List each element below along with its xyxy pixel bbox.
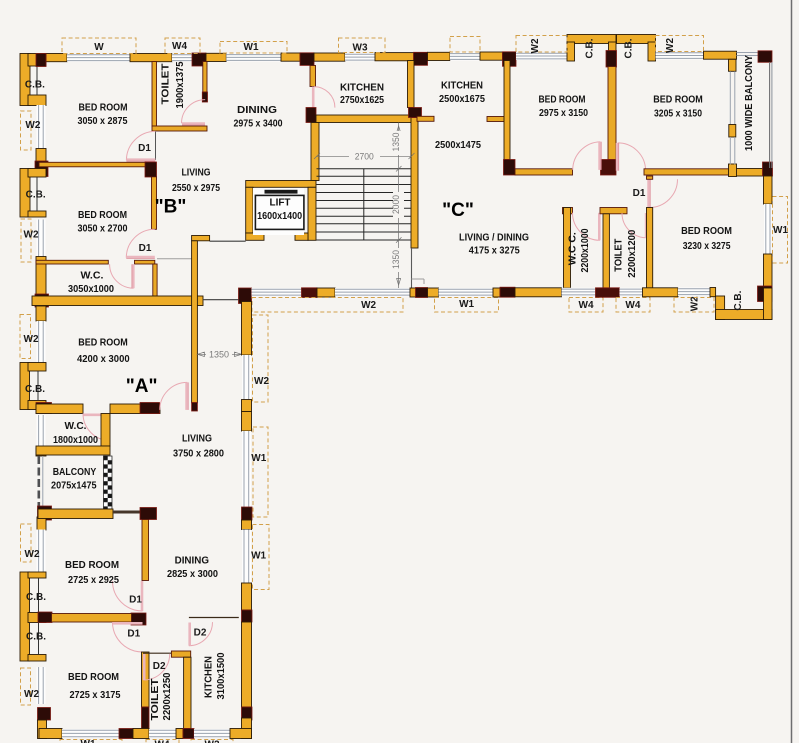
svg-text:2200x1200: 2200x1200 [626, 230, 638, 278]
svg-text:LIVING / DINING: LIVING / DINING [459, 232, 529, 244]
svg-text:LIVING: LIVING [182, 433, 212, 445]
svg-text:D1: D1 [138, 143, 151, 154]
svg-text:1600x1400: 1600x1400 [257, 210, 302, 222]
svg-text:W2: W2 [24, 230, 39, 241]
svg-text:2500x1475: 2500x1475 [435, 139, 481, 151]
svg-text:"C": "C" [442, 200, 474, 221]
svg-text:BED ROOM: BED ROOM [65, 559, 119, 571]
svg-text:3100x1500: 3100x1500 [215, 652, 227, 699]
svg-text:4200 x 3000: 4200 x 3000 [77, 353, 130, 365]
svg-text:C.B.: C.B. [25, 384, 45, 395]
svg-text:D2: D2 [194, 627, 207, 638]
svg-text:TOILET: TOILET [160, 63, 172, 105]
svg-text:2000: 2000 [391, 195, 401, 214]
svg-text:BALCONY: BALCONY [53, 466, 97, 478]
svg-text:D1: D1 [129, 594, 142, 605]
svg-text:W2: W2 [530, 38, 541, 53]
svg-text:1800x1000: 1800x1000 [53, 434, 98, 446]
svg-text:D1: D1 [633, 188, 646, 199]
svg-text:2975 x 3150: 2975 x 3150 [539, 107, 588, 119]
svg-text:3050 x 2875: 3050 x 2875 [78, 115, 128, 127]
svg-text:3050 x 2700: 3050 x 2700 [78, 223, 128, 235]
svg-text:KITCHEN: KITCHEN [340, 82, 384, 94]
svg-text:BED ROOM: BED ROOM [653, 94, 703, 106]
svg-text:2750x1625: 2750x1625 [340, 94, 384, 106]
svg-text:2075x1475: 2075x1475 [51, 479, 97, 491]
svg-text:2200x1000: 2200x1000 [579, 228, 591, 272]
svg-text:BED ROOM: BED ROOM [78, 209, 127, 221]
svg-text:W1: W1 [459, 299, 474, 310]
svg-text:W2: W2 [690, 296, 701, 311]
svg-text:2725 x 2925: 2725 x 2925 [68, 574, 119, 586]
svg-text:C.B.: C.B. [26, 189, 46, 200]
svg-text:3750 x 2800: 3750 x 2800 [173, 448, 224, 460]
svg-text:W4: W4 [625, 300, 640, 311]
svg-text:W: W [94, 42, 104, 53]
svg-text:BED ROOM: BED ROOM [79, 102, 128, 114]
svg-text:W1: W1 [244, 42, 259, 53]
svg-text:3230 x 3275: 3230 x 3275 [683, 240, 731, 252]
svg-text:DINING: DINING [237, 104, 277, 116]
svg-text:W1: W1 [251, 453, 266, 464]
svg-text:C.B.: C.B. [624, 38, 635, 58]
svg-text:C.B.: C.B. [26, 632, 46, 643]
svg-text:KITCHEN: KITCHEN [441, 80, 483, 92]
svg-text:4175 x 3275: 4175 x 3275 [469, 245, 520, 257]
svg-text:KITCHEN: KITCHEN [202, 656, 214, 698]
svg-text:W1: W1 [773, 225, 788, 236]
svg-text:C.B.: C.B. [585, 38, 596, 58]
svg-text:2975 x 3400: 2975 x 3400 [234, 118, 283, 130]
svg-text:C.B.: C.B. [26, 592, 46, 603]
svg-text:"A": "A" [126, 376, 158, 397]
svg-text:DINING: DINING [175, 554, 209, 566]
svg-text:2550 x 2975: 2550 x 2975 [172, 182, 220, 194]
svg-text:W2: W2 [24, 689, 39, 700]
svg-text:BED ROOM: BED ROOM [68, 671, 119, 683]
svg-text:W4: W4 [579, 300, 594, 311]
svg-text:D1: D1 [139, 243, 152, 254]
svg-text:2200x1250: 2200x1250 [161, 672, 173, 720]
svg-text:1350: 1350 [391, 250, 401, 269]
svg-text:W2: W2 [25, 549, 40, 560]
svg-text:W.C.: W.C. [65, 420, 87, 432]
svg-text:W2: W2 [205, 740, 220, 743]
svg-text:W2: W2 [361, 300, 376, 311]
svg-text:W2: W2 [24, 334, 39, 345]
svg-text:TOILET: TOILET [149, 678, 161, 721]
svg-text:W1: W1 [251, 551, 266, 562]
svg-text:"B": "B" [155, 197, 187, 218]
svg-text:2825 x 3000: 2825 x 3000 [167, 568, 218, 580]
svg-text:3050x1000: 3050x1000 [68, 283, 114, 295]
svg-text:3205 x 3150: 3205 x 3150 [654, 108, 702, 120]
svg-text:BED ROOM: BED ROOM [539, 94, 586, 106]
svg-text:BED ROOM: BED ROOM [681, 225, 732, 237]
svg-text:2500x1675: 2500x1675 [439, 93, 485, 105]
svg-text:D2: D2 [153, 661, 166, 672]
svg-text:W3: W3 [353, 43, 368, 54]
svg-text:W2: W2 [665, 38, 676, 53]
svg-text:BED ROOM: BED ROOM [78, 337, 128, 349]
svg-text:LIVING: LIVING [182, 167, 211, 179]
svg-text:W.C C.: W.C C. [567, 232, 579, 265]
svg-text:W4: W4 [172, 41, 187, 52]
svg-text:D1: D1 [127, 629, 140, 640]
svg-text:1000 WIDE BALCONY: 1000 WIDE BALCONY [743, 55, 755, 151]
svg-text:W4: W4 [155, 740, 170, 743]
svg-text:1900x1375: 1900x1375 [174, 61, 186, 108]
svg-text:W2: W2 [254, 376, 269, 387]
svg-text:2725 x 3175: 2725 x 3175 [69, 689, 120, 701]
svg-text:W2: W2 [25, 120, 40, 131]
svg-text:C.B.: C.B. [25, 80, 45, 91]
svg-text:W.C.: W.C. [81, 270, 104, 282]
svg-text:TOILET: TOILET [612, 238, 624, 272]
svg-text:1350: 1350 [209, 350, 229, 360]
svg-text:C.B.: C.B. [733, 290, 744, 310]
svg-text:LIFT: LIFT [270, 197, 292, 209]
svg-text:2700: 2700 [355, 152, 374, 162]
svg-text:1350: 1350 [391, 133, 401, 152]
